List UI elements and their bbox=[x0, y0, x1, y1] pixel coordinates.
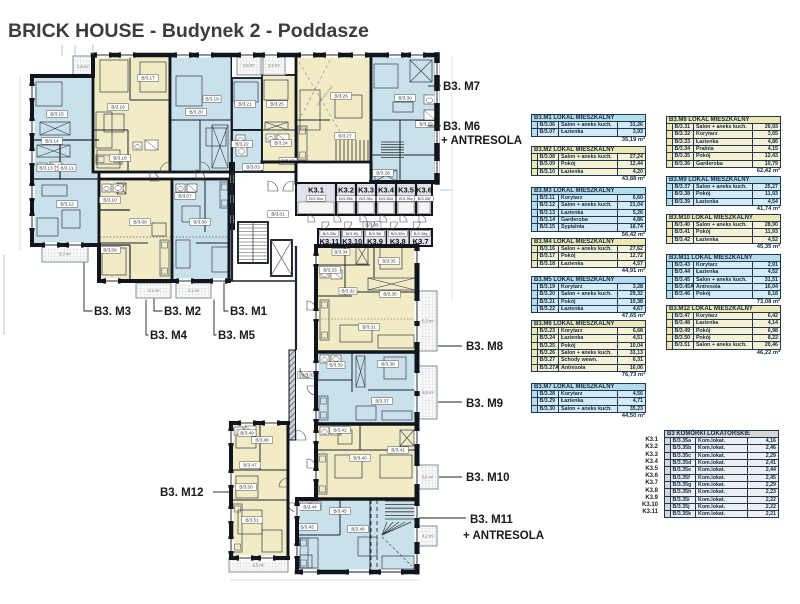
svg-text:5,0 m²: 5,0 m² bbox=[59, 252, 71, 257]
svg-text:B/3.16: B/3.16 bbox=[111, 105, 125, 110]
svg-text:B3. M12: B3. M12 bbox=[160, 487, 203, 499]
svg-text:K3.6: K3.6 bbox=[416, 186, 432, 195]
svg-text:B/3.35d: B/3.35d bbox=[379, 196, 393, 201]
svg-text:2,5 m²: 2,5 m² bbox=[77, 64, 89, 69]
svg-text:B/3.27: B/3.27 bbox=[338, 134, 352, 139]
svg-text:B/3.35k: B/3.35k bbox=[323, 231, 337, 236]
svg-text:B/3.35f: B/3.35f bbox=[418, 196, 432, 201]
svg-text:B/3.35a: B/3.35a bbox=[309, 196, 324, 201]
svg-text:B/3.26: B/3.26 bbox=[334, 94, 348, 99]
svg-text:B/3.01: B/3.01 bbox=[271, 212, 285, 217]
svg-text:B/3.17: B/3.17 bbox=[141, 76, 155, 81]
svg-text:B/3.32: B/3.32 bbox=[341, 289, 355, 294]
svg-text:B/3.48: B/3.48 bbox=[255, 438, 269, 443]
svg-text:B/3.47: B/3.47 bbox=[243, 463, 257, 468]
svg-text:B/3.43: B/3.43 bbox=[300, 525, 314, 530]
svg-text:B/3.45: B/3.45 bbox=[333, 509, 347, 514]
svg-text:B/3.03: B/3.03 bbox=[246, 165, 260, 170]
svg-text:B/3.10: B/3.10 bbox=[103, 198, 117, 203]
svg-text:B/3.31: B/3.31 bbox=[362, 325, 376, 330]
svg-text:B3. M2: B3. M2 bbox=[164, 306, 201, 318]
svg-text:3,6 m²: 3,6 m² bbox=[243, 63, 255, 68]
svg-text:B/3.13: B/3.13 bbox=[39, 166, 53, 171]
svg-text:B/3.21: B/3.21 bbox=[238, 102, 252, 107]
svg-text:B/3.35h: B/3.35h bbox=[391, 231, 405, 236]
svg-text:B/3.35i: B/3.35i bbox=[369, 231, 382, 236]
svg-text:+ ANTRESOLA: + ANTRESOLA bbox=[463, 530, 544, 542]
svg-text:B/3.35e: B/3.35e bbox=[399, 196, 414, 201]
svg-text:B/3.41: B/3.41 bbox=[391, 448, 405, 453]
svg-text:B/3.30: B/3.30 bbox=[398, 96, 412, 101]
svg-text:B3. M10: B3. M10 bbox=[466, 472, 509, 484]
svg-text:B/3.15: B/3.15 bbox=[50, 112, 64, 117]
svg-text:+ ANTRESOLA: + ANTRESOLA bbox=[441, 135, 522, 147]
svg-text:B/3.36: B/3.36 bbox=[383, 292, 397, 297]
svg-text:B3. M7: B3. M7 bbox=[443, 81, 480, 93]
svg-text:B/3.49: B/3.49 bbox=[240, 431, 254, 436]
svg-text:B/3.39: B/3.39 bbox=[329, 363, 343, 368]
svg-text:B/3.35b: B/3.35b bbox=[339, 196, 354, 201]
svg-text:4,1 m²: 4,1 m² bbox=[188, 288, 200, 293]
svg-text:6,3 m²: 6,3 m² bbox=[422, 319, 434, 324]
svg-text:B/3.28: B/3.28 bbox=[376, 171, 390, 176]
svg-text:B/3.12: B/3.12 bbox=[60, 202, 74, 207]
svg-text:B/3.20: B/3.20 bbox=[189, 110, 203, 115]
svg-text:B/3.50: B/3.50 bbox=[239, 485, 253, 490]
svg-text:B/3.35c: B/3.35c bbox=[359, 196, 373, 201]
svg-text:B/3.44: B/3.44 bbox=[303, 505, 317, 510]
svg-text:B3. M3: B3. M3 bbox=[94, 306, 131, 318]
svg-text:B/3.06: B/3.06 bbox=[193, 220, 207, 225]
svg-text:B3. M11: B3. M11 bbox=[470, 514, 513, 526]
svg-text:B/3.40: B/3.40 bbox=[353, 456, 367, 461]
svg-text:6,5 m²: 6,5 m² bbox=[253, 563, 265, 568]
svg-text:B/3.24: B/3.24 bbox=[274, 141, 288, 146]
svg-text:B/3.33: B/3.33 bbox=[323, 268, 337, 273]
svg-text:B/3.18: B/3.18 bbox=[113, 156, 127, 161]
svg-text:K3.5: K3.5 bbox=[398, 186, 414, 195]
svg-text:B/3.42: B/3.42 bbox=[333, 428, 347, 433]
svg-text:B/3.34: B/3.34 bbox=[334, 250, 348, 255]
svg-text:B/3.35j: B/3.35j bbox=[346, 231, 359, 236]
svg-text:B3. M5: B3. M5 bbox=[218, 330, 256, 342]
svg-text:B/3.19: B/3.19 bbox=[205, 97, 219, 102]
svg-text:B/3.37: B/3.37 bbox=[375, 399, 389, 404]
svg-text:B3. M4: B3. M4 bbox=[150, 330, 188, 342]
svg-text:B/3.22: B/3.22 bbox=[235, 142, 249, 147]
svg-text:5,9 m²: 5,9 m² bbox=[422, 390, 434, 395]
svg-text:B/3.25: B/3.25 bbox=[270, 102, 284, 107]
svg-text:B/3.09: B/3.09 bbox=[103, 248, 117, 253]
svg-text:B/3.14: B/3.14 bbox=[45, 139, 59, 144]
svg-text:B/3.11: B/3.11 bbox=[61, 166, 74, 171]
svg-text:B/3.35: B/3.35 bbox=[382, 259, 396, 264]
svg-text:K3.2: K3.2 bbox=[338, 186, 354, 195]
svg-text:B3. M1: B3. M1 bbox=[230, 306, 268, 318]
svg-text:B/3.46: B/3.46 bbox=[351, 527, 365, 532]
svg-text:4,2 m²: 4,2 m² bbox=[422, 534, 434, 539]
svg-text:K3.3: K3.3 bbox=[358, 186, 374, 195]
svg-text:B/3.51: B/3.51 bbox=[245, 518, 259, 523]
svg-text:B/3.38: B/3.38 bbox=[381, 362, 395, 367]
svg-text:B/3.07: B/3.07 bbox=[178, 194, 192, 199]
svg-text:3,6 m²: 3,6 m² bbox=[422, 475, 434, 480]
svg-text:3,9 m²: 3,9 m² bbox=[268, 63, 280, 68]
svg-text:B/3.08: B/3.08 bbox=[133, 220, 147, 225]
svg-text:B3. M8: B3. M8 bbox=[466, 341, 504, 353]
svg-text:K3.4: K3.4 bbox=[378, 186, 395, 195]
svg-text:K3.1: K3.1 bbox=[308, 186, 324, 195]
svg-text:B3. M6: B3. M6 bbox=[443, 121, 480, 133]
svg-text:4,1 m²: 4,1 m² bbox=[148, 288, 160, 293]
svg-text:B/3.35g: B/3.35g bbox=[414, 231, 428, 236]
svg-text:B3. M9: B3. M9 bbox=[466, 398, 503, 410]
